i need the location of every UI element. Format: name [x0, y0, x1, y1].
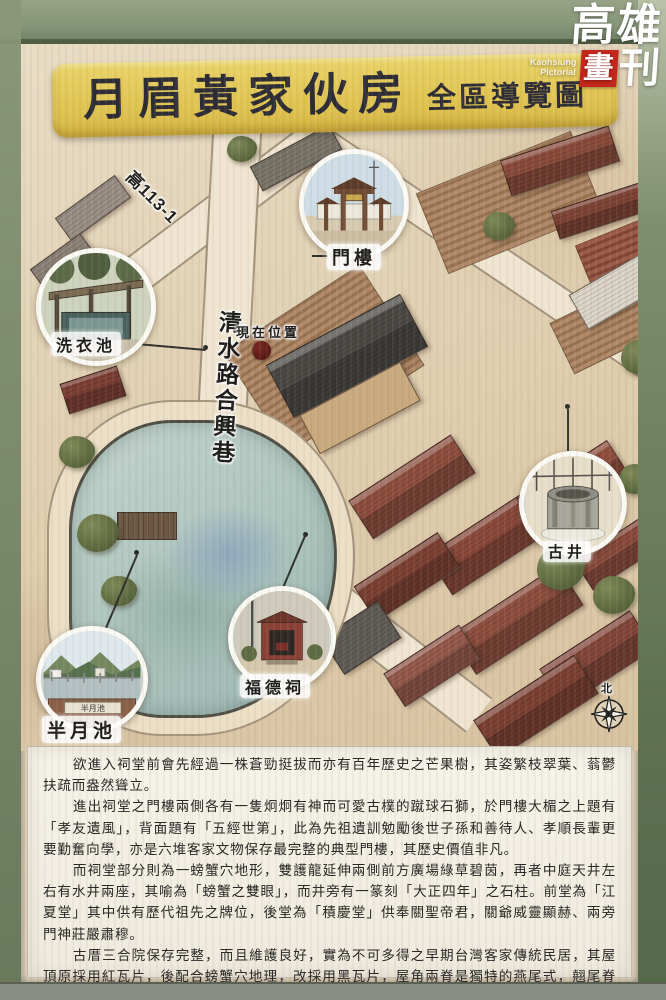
poi-label-old-well: 古井	[543, 541, 591, 562]
leader-dot	[203, 345, 208, 350]
sign-panel: 半月池 高113-1 清水路合興巷 現在位置 門樓 洗衣池 古井 福德祠 半月池…	[21, 44, 638, 982]
compass-rose-icon	[589, 694, 629, 734]
leader-dot	[303, 532, 308, 537]
pond-pier	[117, 512, 177, 540]
frame-left	[0, 0, 21, 1000]
signboard-photo: 半月池 高113-1 清水路合興巷 現在位置 門樓 洗衣池 古井 福德祠 半月池…	[0, 0, 666, 1000]
kaohsiung-pictorial-logo: 高雄 Kaohsiung Pictorial 畫 刊	[528, 5, 664, 88]
poi-photo-gate	[299, 149, 409, 259]
leader-line-gate	[312, 255, 328, 257]
title-main: 月眉黃家伙房	[82, 56, 413, 137]
fude-shrine-illustration	[233, 591, 331, 685]
half-moon-pond-illustration: 半月池	[41, 631, 143, 728]
info-paragraph: 而祠堂部分則為一螃蟹穴地形，雙護龍延伸兩側前方廣場綠草碧茵，再者中庭天井左右有水…	[43, 860, 616, 945]
leader-dot	[565, 404, 570, 409]
pavilion	[60, 366, 127, 415]
roof-red	[348, 434, 475, 539]
leader-dot	[134, 550, 139, 555]
gate-illustration	[304, 154, 404, 254]
roof-red	[473, 655, 599, 751]
info-panel: 欲進入祠堂前會先經過一株蒼勁挺拔而亦有百年歷史之芒果樹，其姿繁枝翠葉、蓊鬱扶疏而…	[27, 746, 632, 978]
current-location-label: 現在位置	[236, 322, 300, 341]
poi-label-fude-shrine: 福德祠	[240, 674, 310, 698]
old-well-illustration	[524, 456, 622, 551]
info-paragraph: 進出祠堂之門樓兩側各有一隻炯炯有神而可愛古樸的蹴球石獅，於門樓大楣之上題有「孝友…	[43, 796, 616, 860]
frame-bottom	[0, 982, 666, 1000]
pond-photo-caption: 半月池	[81, 703, 105, 713]
building	[55, 175, 131, 241]
map-illustration: 半月池 高113-1 清水路合興巷 現在位置 門樓 洗衣池 古井 福德祠 半月池…	[21, 44, 638, 751]
logo-line1: 高雄	[530, 5, 663, 47]
poi-label-gate: 門樓	[327, 244, 381, 270]
info-paragraph: 古厝三合院保存完整，而且維護良好，實為不可多得之早期台灣客家傳統民居，其屋頂原採…	[43, 945, 616, 982]
current-location-dot	[252, 341, 271, 360]
poi-label-wash-pool: 洗衣池	[51, 332, 121, 356]
road-number-label: 高113-1	[121, 164, 185, 228]
tree	[593, 576, 635, 614]
logo-boxed-char: 畫	[578, 50, 618, 87]
poi-label-half-moon-pond: 半月池	[42, 716, 121, 743]
logo-kan-char: 刊	[617, 49, 661, 88]
leader-line-old-well	[567, 409, 569, 451]
info-paragraph: 欲進入祠堂前會先經過一株蒼勁挺拔而亦有百年歷史之芒果樹，其姿繁枝翠葉、蓊鬱扶疏而…	[43, 754, 616, 796]
frame-right	[638, 0, 666, 1000]
logo-english-subtitle: Kaohsiung Pictorial	[528, 58, 576, 78]
